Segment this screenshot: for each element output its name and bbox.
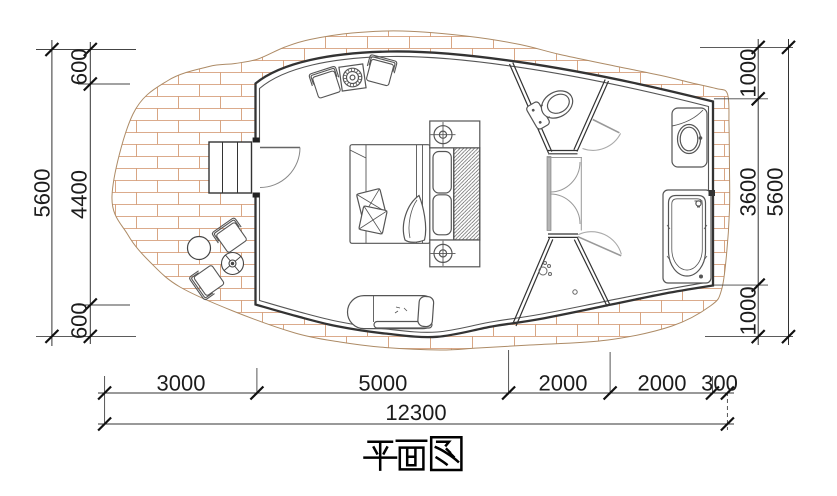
svg-text:600: 600 — [67, 302, 92, 339]
svg-text:3000: 3000 — [157, 371, 206, 396]
svg-text:12300: 12300 — [385, 400, 446, 425]
svg-text:1000: 1000 — [736, 286, 761, 335]
svg-text:5600: 5600 — [30, 169, 55, 218]
svg-text:2000: 2000 — [638, 371, 687, 396]
svg-text:1000: 1000 — [736, 49, 761, 98]
svg-text:4400: 4400 — [67, 170, 92, 219]
svg-text:2000: 2000 — [539, 371, 588, 396]
svg-text:5600: 5600 — [763, 168, 788, 217]
svg-text:600: 600 — [67, 48, 92, 85]
svg-text:300: 300 — [701, 371, 738, 396]
svg-text:3600: 3600 — [736, 168, 761, 217]
svg-text:5000: 5000 — [358, 371, 407, 396]
